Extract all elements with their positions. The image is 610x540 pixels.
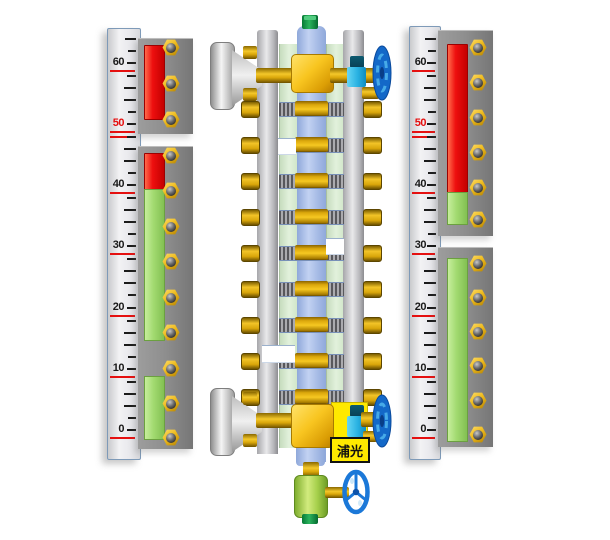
top-process-flange (210, 42, 235, 110)
scale-label: 10 (109, 361, 124, 375)
scale-minor-tick (127, 381, 136, 383)
top-flange-bolt (243, 46, 257, 59)
scale-minor-tick (428, 294, 436, 296)
scale-minor-tick (427, 197, 436, 199)
scale-major-tick (427, 307, 436, 309)
scale-minor-tick (128, 172, 136, 174)
scale-red-line (110, 131, 135, 133)
scale-major-tick (427, 245, 436, 247)
side-bolt-left (241, 173, 260, 190)
scale-major-tick (427, 62, 436, 64)
scale-red-line (412, 376, 435, 378)
scale-major-tick (127, 429, 136, 431)
scale-minor-tick (428, 356, 436, 358)
scale-label: 20 (109, 300, 124, 314)
scale-minor-tick (124, 393, 136, 395)
scale-red-line (110, 192, 135, 194)
scale-minor-tick (427, 258, 436, 260)
scale-minor-tick (424, 221, 436, 223)
nut-core (473, 327, 483, 337)
scale-red-line (412, 131, 435, 133)
tube-gold-band (295, 101, 328, 116)
scale-major-tick (427, 184, 436, 186)
scale-major-tick (127, 368, 136, 370)
scale-red-line (412, 70, 435, 72)
scale-minor-tick (124, 332, 136, 334)
nut-core (473, 430, 483, 440)
scale-minor-tick (124, 270, 136, 272)
side-bolt-left (241, 281, 260, 298)
scale-red-line (110, 376, 135, 378)
scale-minor-tick (127, 320, 136, 322)
glass-section-gap (278, 138, 296, 155)
left-scale-strip: 6050403020100 (107, 28, 141, 460)
scale-minor-tick (424, 209, 436, 211)
flag-column-green (447, 258, 468, 442)
scale-label: 20 (411, 300, 426, 314)
scale-minor-tick (128, 233, 136, 235)
scale-label: 30 (411, 238, 426, 252)
nut-core (473, 361, 483, 371)
scale-minor-tick (124, 282, 136, 284)
side-bolt-right (363, 317, 382, 334)
bottom-valve-body (291, 404, 334, 448)
scale-minor-tick (128, 356, 136, 358)
nut-core (473, 215, 483, 225)
scale-minor-tick (128, 111, 136, 113)
scale-red-line (412, 315, 435, 317)
scale-minor-tick (424, 148, 436, 150)
nut-core (166, 151, 176, 161)
top-valve-gland (347, 67, 366, 87)
scale-minor-tick (124, 221, 136, 223)
nut-core (473, 183, 483, 193)
scale-minor-tick (124, 160, 136, 162)
nut-core (166, 433, 176, 443)
flag-column-red (144, 153, 165, 191)
nut-core (166, 115, 176, 125)
scale-major-tick (427, 429, 436, 431)
drain-valve-body (294, 475, 328, 518)
side-bolt-right (363, 173, 382, 190)
nut-core (166, 222, 176, 232)
scale-label: 60 (109, 55, 124, 69)
scale-label: 0 (109, 422, 124, 436)
tube-gold-band (295, 137, 328, 152)
nut-core (166, 399, 176, 409)
scale-major-tick (127, 62, 136, 64)
side-bolt-right (363, 245, 382, 262)
side-bolt-left (241, 209, 260, 226)
scale-minor-tick (427, 320, 436, 322)
scale-label: 0 (411, 422, 426, 436)
side-bolt-left (241, 137, 260, 154)
side-bolt-right (363, 281, 382, 298)
side-bolt-right (363, 137, 382, 154)
scale-minor-tick (428, 50, 436, 52)
glass-section-gap (326, 238, 344, 255)
scale-minor-tick (127, 75, 136, 77)
side-bolt-left (241, 101, 260, 118)
scale-minor-tick (424, 393, 436, 395)
scale-red-line (110, 70, 135, 72)
scale-label: 50 (411, 116, 426, 130)
nut-core (473, 43, 483, 53)
tube-gold-band (295, 389, 328, 404)
scale-minor-tick (424, 282, 436, 284)
frame-rail-left (257, 30, 278, 454)
scale-minor-tick (427, 136, 436, 138)
right-scale-strip: 6050403020100 (409, 26, 441, 460)
scale-minor-tick (428, 172, 436, 174)
scale-minor-tick (424, 99, 436, 101)
scale-minor-tick (128, 417, 136, 419)
scale-minor-tick (127, 258, 136, 260)
flag-column-green (447, 192, 468, 225)
scale-major-tick (427, 368, 436, 370)
flag-column-green (144, 189, 165, 341)
side-bolt-left (241, 317, 260, 334)
side-bolt-right (363, 209, 382, 226)
drain-cap (302, 514, 318, 524)
nut-core (166, 79, 176, 89)
drain-handwheel-icon (341, 467, 372, 517)
side-bolt-right (363, 353, 382, 370)
scale-minor-tick (424, 332, 436, 334)
scale-minor-tick (128, 294, 136, 296)
scale-label: 10 (411, 361, 426, 375)
scale-red-line (412, 253, 435, 255)
nut-core (473, 396, 483, 406)
glass-section-gap (262, 345, 295, 363)
nut-core (166, 43, 176, 53)
scale-minor-tick (124, 99, 136, 101)
nut-core (473, 259, 483, 269)
tube-gold-band (295, 245, 328, 260)
scale-minor-tick (124, 148, 136, 150)
scale-minor-tick (424, 344, 436, 346)
scale-minor-tick (125, 38, 136, 40)
nut-core (473, 148, 483, 158)
scale-major-tick (127, 245, 136, 247)
magnetic-level-gauge-illustration: 浦光 60504030201006050403020100 (0, 0, 610, 540)
scale-minor-tick (128, 50, 136, 52)
scale-label: 40 (411, 177, 426, 191)
scale-major-tick (427, 123, 436, 125)
side-bolt-left (241, 353, 260, 370)
scale-major-tick (127, 307, 136, 309)
scale-label: 50 (109, 116, 124, 130)
scale-red-line (110, 437, 135, 439)
nut-core (166, 293, 176, 303)
scale-minor-tick (424, 270, 436, 272)
scale-minor-tick (124, 344, 136, 346)
side-bolt-left (241, 245, 260, 262)
tube-gold-band (295, 353, 328, 368)
bottom-process-flange (210, 388, 235, 456)
scale-minor-tick (428, 233, 436, 235)
side-bolt-right (363, 101, 382, 118)
bottom-flange-bolt (243, 434, 257, 447)
scale-label: 30 (109, 238, 124, 252)
tube-gold-band (295, 281, 328, 296)
nut-core (166, 328, 176, 338)
scale-red-line (110, 253, 135, 255)
bottom-handwheel-icon (372, 394, 392, 448)
scale-minor-tick (124, 87, 136, 89)
scale-minor-tick (124, 405, 136, 407)
scale-minor-tick (427, 75, 436, 77)
nut-core (473, 293, 483, 303)
nut-core (166, 186, 176, 196)
scale-red-line (110, 315, 135, 317)
scale-minor-tick (127, 197, 136, 199)
scale-label: 60 (411, 55, 426, 69)
flag-column-red (447, 44, 468, 194)
brand-label: 浦光 (330, 437, 370, 463)
top-handwheel-icon (372, 45, 392, 101)
scale-label: 40 (109, 177, 124, 191)
scale-minor-tick (425, 38, 436, 40)
scale-minor-tick (127, 136, 136, 138)
scale-major-tick (127, 123, 136, 125)
nut-core (473, 113, 483, 123)
scale-minor-tick (428, 417, 436, 419)
flag-column-red (144, 45, 165, 120)
nut-core (166, 257, 176, 267)
tube-gold-band (295, 173, 328, 188)
flag-column-green (144, 376, 165, 440)
scale-minor-tick (124, 209, 136, 211)
scale-red-line (412, 192, 435, 194)
top-valve-body (291, 54, 334, 93)
bottom-flange-bolt (243, 392, 257, 405)
scale-minor-tick (424, 87, 436, 89)
scale-red-line (412, 437, 435, 439)
scale-minor-tick (428, 111, 436, 113)
top-flange-bolt (243, 88, 257, 101)
tube-gold-band (295, 209, 328, 224)
scale-minor-tick (424, 160, 436, 162)
scale-minor-tick (424, 405, 436, 407)
nut-core (166, 364, 176, 374)
tube-gold-band (295, 317, 328, 332)
top-vent-cap (302, 15, 318, 29)
scale-major-tick (127, 184, 136, 186)
frame-rail-right (343, 30, 364, 454)
nut-core (473, 78, 483, 88)
scale-minor-tick (427, 381, 436, 383)
